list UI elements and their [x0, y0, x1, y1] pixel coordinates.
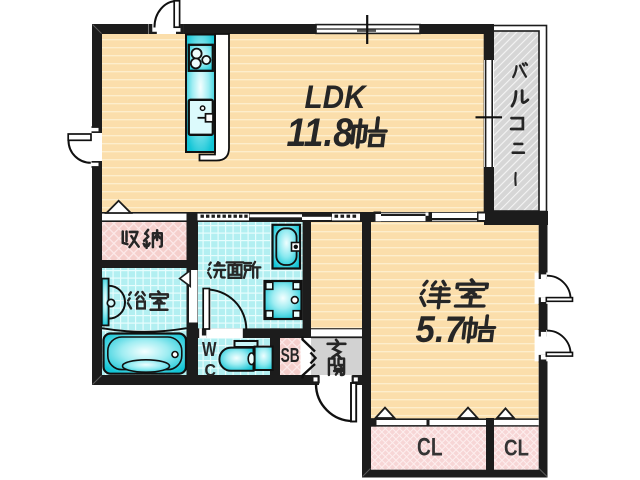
svg-text:W: W — [202, 339, 217, 361]
svg-text:LDK: LDK — [305, 79, 369, 115]
svg-text:CL: CL — [504, 434, 529, 460]
svg-text:5.7: 5.7 — [416, 309, 467, 350]
svg-text:C: C — [205, 360, 217, 380]
svg-text:SB: SB — [281, 345, 300, 367]
svg-text:CL: CL — [417, 433, 443, 461]
svg-text:11.8: 11.8 — [287, 111, 354, 155]
